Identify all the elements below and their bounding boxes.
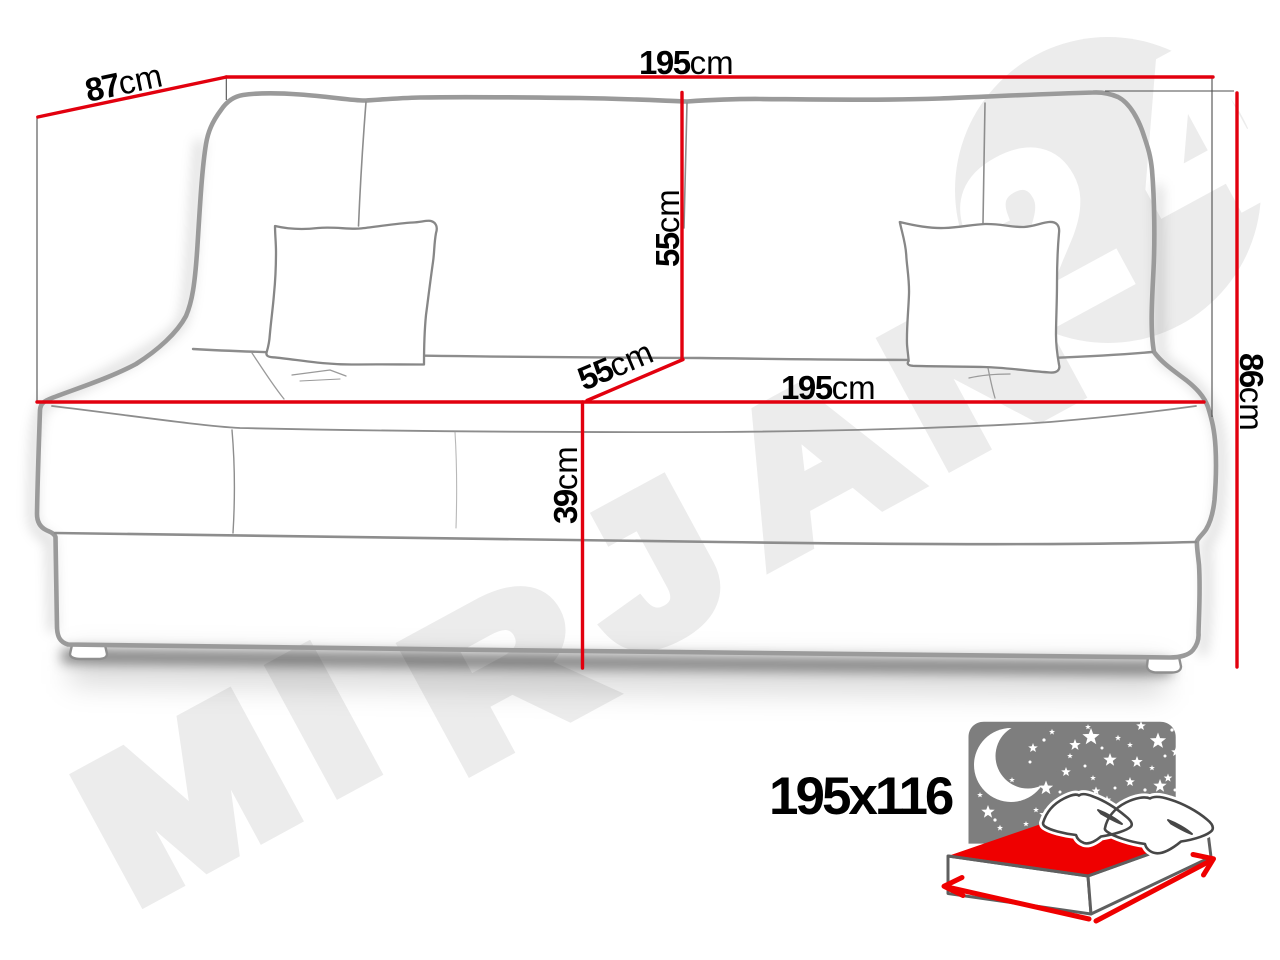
svg-text:195x116: 195x116 bbox=[769, 767, 953, 826]
svg-text:195cm: 195cm bbox=[781, 369, 876, 406]
svg-text:55cm: 55cm bbox=[649, 189, 686, 267]
svg-text:39cm: 39cm bbox=[547, 446, 584, 524]
svg-text:86cm: 86cm bbox=[1233, 353, 1270, 431]
svg-text:195cm: 195cm bbox=[639, 44, 734, 81]
svg-text:87cm: 87cm bbox=[82, 56, 166, 108]
